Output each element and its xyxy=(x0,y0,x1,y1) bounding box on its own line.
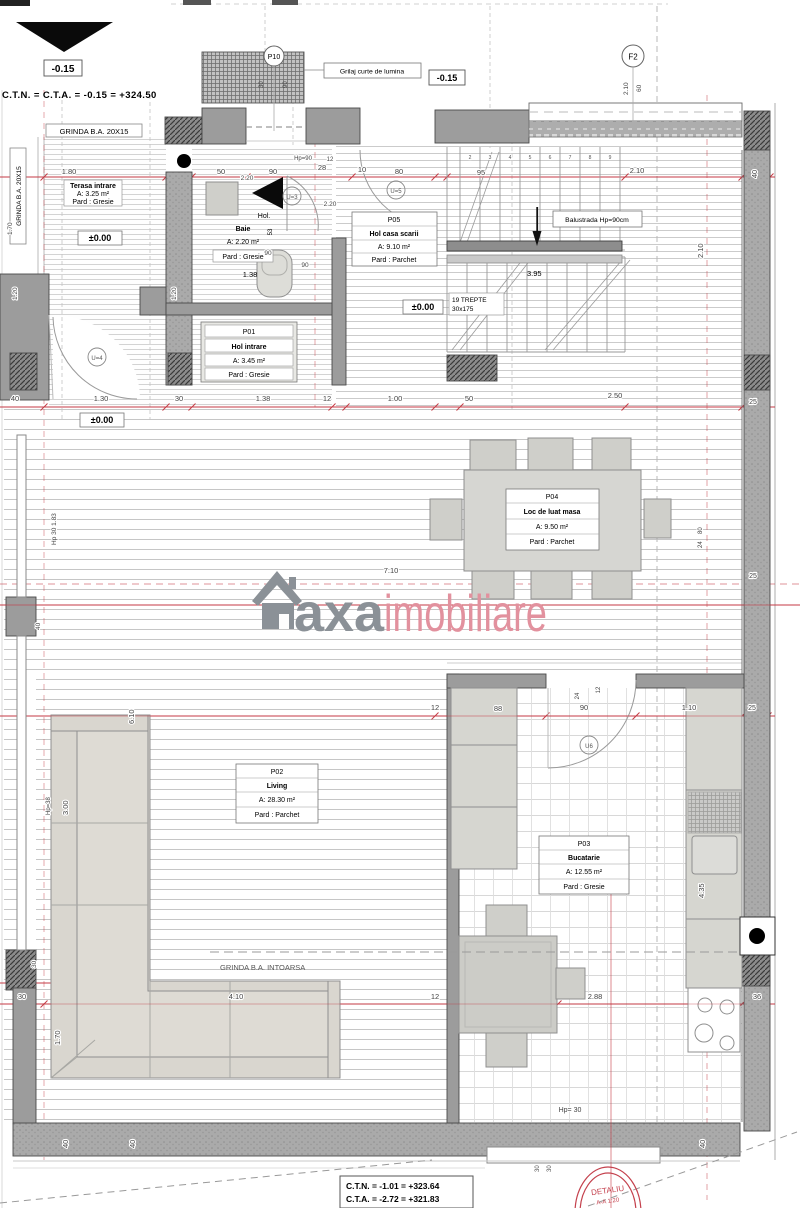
svg-text:Hp= 30: Hp= 30 xyxy=(559,1107,582,1114)
svg-text:1.80: 1.80 xyxy=(62,167,77,176)
svg-text:Hol casa scarii: Hol casa scarii xyxy=(369,231,418,238)
svg-text:8: 8 xyxy=(589,155,592,161)
svg-text:40: 40 xyxy=(35,622,42,630)
svg-text:A: 3.25 m²: A: 3.25 m² xyxy=(77,191,110,198)
svg-text:Hp=38: Hp=38 xyxy=(46,796,52,815)
svg-text:C.T.N. = -1.01 = +323.64: C.T.N. = -1.01 = +323.64 xyxy=(346,1181,440,1191)
svg-text:6.10: 6.10 xyxy=(127,709,136,724)
svg-text:2: 2 xyxy=(469,155,472,161)
svg-text:U=3: U=3 xyxy=(286,195,298,201)
svg-text:A: 9.50 m²: A: 9.50 m² xyxy=(536,524,569,531)
svg-text:4: 4 xyxy=(509,155,512,161)
svg-text:30x175: 30x175 xyxy=(452,306,474,313)
svg-text:12: 12 xyxy=(323,394,331,403)
svg-text:24: 24 xyxy=(698,541,704,548)
svg-text:Pard : Parchet: Pard : Parchet xyxy=(372,257,417,264)
svg-text:A: 9.10 m²: A: 9.10 m² xyxy=(378,244,411,251)
svg-text:90: 90 xyxy=(283,81,289,88)
svg-text:F2: F2 xyxy=(628,53,638,62)
svg-text:A: 3.45 m²: A: 3.45 m² xyxy=(233,358,266,365)
svg-text:Pard : Gresie: Pard : Gresie xyxy=(72,199,113,206)
svg-text:P02: P02 xyxy=(271,769,284,776)
svg-text:30: 30 xyxy=(547,1165,553,1172)
svg-text:A: 12.55 m²: A: 12.55 m² xyxy=(566,869,603,876)
svg-text:1.70: 1.70 xyxy=(7,222,14,235)
svg-text:80: 80 xyxy=(698,527,704,534)
svg-text:53: 53 xyxy=(268,228,274,235)
svg-text:GRINDA B.A. INTOARSA: GRINDA B.A. INTOARSA xyxy=(220,963,305,972)
svg-text:19 TREPTE: 19 TREPTE xyxy=(452,297,487,304)
svg-text:Pard : Parchet: Pard : Parchet xyxy=(255,812,300,819)
svg-text:90: 90 xyxy=(580,703,588,712)
svg-text:28: 28 xyxy=(318,163,326,172)
svg-text:4.10: 4.10 xyxy=(229,992,244,1001)
svg-text:25: 25 xyxy=(749,399,757,406)
svg-text:C.T.A. = -2.72 = +321.83: C.T.A. = -2.72 = +321.83 xyxy=(346,1194,440,1204)
svg-text:-0.15: -0.15 xyxy=(437,73,458,83)
svg-text:1.20: 1.20 xyxy=(171,287,178,300)
svg-text:7.10: 7.10 xyxy=(384,566,399,575)
svg-text:40: 40 xyxy=(750,170,759,178)
svg-text:A: 2.20 m²: A: 2.20 m² xyxy=(227,239,260,246)
svg-text:40: 40 xyxy=(128,1140,137,1148)
svg-text:6: 6 xyxy=(549,155,552,161)
svg-text:30: 30 xyxy=(31,960,38,968)
svg-text:P03: P03 xyxy=(578,841,591,848)
svg-text:30: 30 xyxy=(18,992,26,1001)
svg-text:1.20: 1.20 xyxy=(12,287,19,300)
svg-text:90: 90 xyxy=(264,250,272,257)
svg-text:Bucatarie: Bucatarie xyxy=(568,855,600,862)
svg-text:50: 50 xyxy=(217,167,225,176)
svg-text:9: 9 xyxy=(609,155,612,161)
svg-text:50: 50 xyxy=(465,394,473,403)
svg-text:GRINDA B.A. 20X15: GRINDA B.A. 20X15 xyxy=(16,166,23,226)
svg-text:A: 28.30 m²: A: 28.30 m² xyxy=(259,797,296,804)
svg-text:Hp=90: Hp=90 xyxy=(294,156,313,162)
svg-text:1.70: 1.70 xyxy=(53,1030,62,1045)
svg-text:1.38: 1.38 xyxy=(243,270,258,279)
svg-text:P05: P05 xyxy=(388,217,401,224)
svg-text:Hol intrare: Hol intrare xyxy=(231,344,266,351)
svg-text:U6: U6 xyxy=(585,744,593,750)
svg-text:GRINDA B.A. 20X15: GRINDA B.A. 20X15 xyxy=(60,127,129,136)
svg-text:2.10: 2.10 xyxy=(630,166,645,175)
svg-text:40: 40 xyxy=(61,1140,70,1148)
svg-text:2.10: 2.10 xyxy=(623,82,630,95)
svg-text:1.38: 1.38 xyxy=(256,394,271,403)
svg-text:24: 24 xyxy=(575,692,581,699)
svg-text:95: 95 xyxy=(477,168,485,177)
svg-text:4.35: 4.35 xyxy=(697,883,706,898)
svg-text:30: 30 xyxy=(175,394,183,403)
svg-text:1.30: 1.30 xyxy=(94,394,109,403)
svg-text:Living: Living xyxy=(267,783,288,790)
svg-text:-0.15: -0.15 xyxy=(52,64,75,75)
svg-text:25: 25 xyxy=(748,705,756,712)
svg-text:axa: axa xyxy=(294,583,385,643)
svg-text:P01: P01 xyxy=(243,329,256,336)
svg-text:60: 60 xyxy=(636,84,643,92)
svg-text:2.20: 2.20 xyxy=(241,175,254,182)
svg-text:Baie: Baie xyxy=(236,226,251,233)
svg-text:Balustrada Hp=90cm: Balustrada Hp=90cm xyxy=(565,217,629,224)
svg-text:C.T.N. = C.T.A. = -0.15 = +324: C.T.N. = C.T.A. = -0.15 = +324.50 xyxy=(2,90,157,101)
svg-text:30: 30 xyxy=(259,81,265,88)
svg-text:40: 40 xyxy=(11,394,19,403)
svg-text:Hp 30 1.83: Hp 30 1.83 xyxy=(51,513,58,545)
svg-text:12: 12 xyxy=(596,686,602,693)
svg-text:Pard : Parchet: Pard : Parchet xyxy=(530,539,575,546)
svg-text:3.00: 3.00 xyxy=(61,800,70,815)
svg-text:Terasa intrare: Terasa intrare xyxy=(70,183,116,190)
svg-text:40: 40 xyxy=(698,1140,707,1148)
svg-text:Loc de luat masa: Loc de luat masa xyxy=(524,509,581,516)
svg-text:±0.00: ±0.00 xyxy=(91,415,113,425)
svg-text:3.95: 3.95 xyxy=(527,269,542,278)
svg-text:12: 12 xyxy=(327,157,334,163)
svg-text:30: 30 xyxy=(535,1165,541,1172)
svg-text:imobiliare: imobiliare xyxy=(384,585,547,643)
svg-text:80: 80 xyxy=(395,167,403,176)
svg-text:±0.00: ±0.00 xyxy=(412,302,434,312)
svg-text:2.20: 2.20 xyxy=(324,201,337,208)
svg-text:25: 25 xyxy=(749,573,757,580)
svg-text:2.88: 2.88 xyxy=(588,992,603,1001)
svg-text:Hol.: Hol. xyxy=(258,213,271,220)
svg-text:36: 36 xyxy=(753,992,761,1001)
svg-text:U=4: U=4 xyxy=(91,356,103,362)
svg-text:Pard : Gresie: Pard : Gresie xyxy=(563,884,604,891)
svg-text:90: 90 xyxy=(301,262,309,269)
svg-text:10: 10 xyxy=(358,165,366,174)
svg-text:1.00: 1.00 xyxy=(388,394,403,403)
svg-text:Pard : Gresie: Pard : Gresie xyxy=(222,254,263,261)
svg-text:U=5: U=5 xyxy=(390,189,402,195)
svg-text:90: 90 xyxy=(269,167,277,176)
svg-text:3: 3 xyxy=(489,155,492,161)
svg-text:±0.00: ±0.00 xyxy=(89,233,111,243)
svg-text:5: 5 xyxy=(529,155,532,161)
svg-text:P04: P04 xyxy=(546,494,559,501)
svg-text:Pard : Gresie: Pard : Gresie xyxy=(228,372,269,379)
svg-text:Grilaj curte de lumina: Grilaj curte de lumina xyxy=(340,69,404,76)
svg-text:2.50: 2.50 xyxy=(608,391,623,400)
svg-text:12: 12 xyxy=(431,703,439,712)
svg-text:P10: P10 xyxy=(268,54,281,61)
svg-text:88: 88 xyxy=(494,704,502,713)
svg-text:7: 7 xyxy=(569,155,572,161)
svg-text:2.10: 2.10 xyxy=(696,243,705,258)
svg-text:1.10: 1.10 xyxy=(682,703,697,712)
svg-text:12: 12 xyxy=(431,992,439,1001)
